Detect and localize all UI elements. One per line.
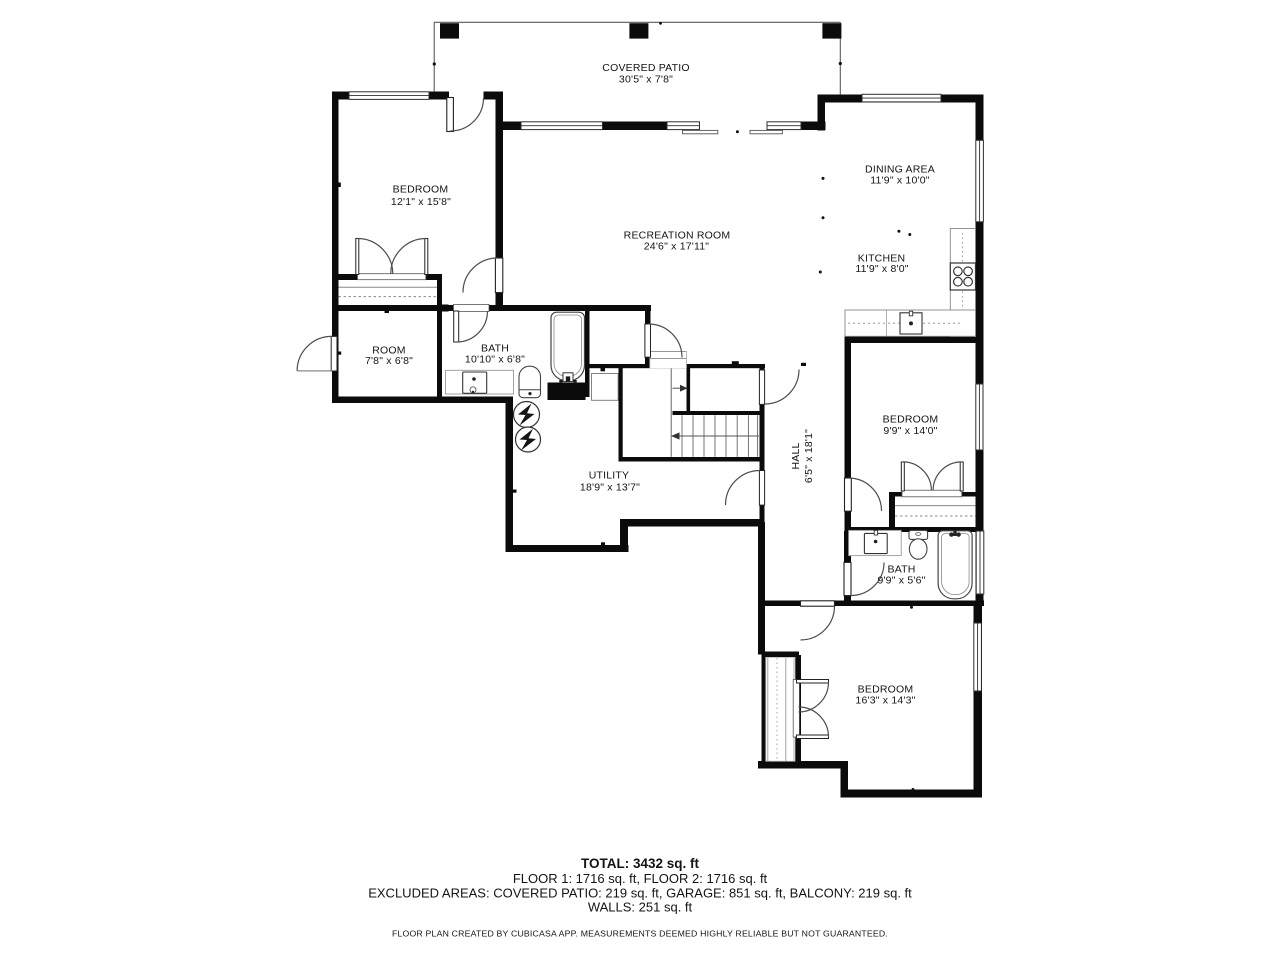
svg-text:FLOOR 1: 1716 sq. ft, FLOOR 2:: FLOOR 1: 1716 sq. ft, FLOOR 2: 1716 sq. … bbox=[513, 871, 768, 886]
svg-text:WALLS: 251 sq. ft: WALLS: 251 sq. ft bbox=[588, 900, 693, 915]
svg-text:BEDROOM: BEDROOM bbox=[393, 184, 449, 196]
svg-text:BATH: BATH bbox=[887, 563, 915, 575]
svg-text:24'6" x 17'11": 24'6" x 17'11" bbox=[644, 240, 710, 252]
svg-text:HALL: HALL bbox=[790, 442, 802, 469]
svg-text:UTILITY: UTILITY bbox=[589, 470, 630, 482]
svg-text:16'3" x 14'3": 16'3" x 14'3" bbox=[855, 695, 915, 707]
svg-text:EXCLUDED AREAS: COVERED PATIO:: EXCLUDED AREAS: COVERED PATIO: 219 sq. f… bbox=[368, 886, 912, 901]
svg-text:9'9" x 5'6": 9'9" x 5'6" bbox=[877, 575, 925, 587]
svg-text:BEDROOM: BEDROOM bbox=[883, 413, 939, 425]
svg-text:12'1" x 15'8": 12'1" x 15'8" bbox=[391, 196, 451, 208]
svg-text:10'10" x 6'8": 10'10" x 6'8" bbox=[465, 353, 525, 365]
svg-text:TOTAL: 3432 sq. ft: TOTAL: 3432 sq. ft bbox=[581, 856, 700, 871]
svg-text:30'5" x 7'8": 30'5" x 7'8" bbox=[619, 74, 673, 86]
svg-text:FLOOR PLAN CREATED BY CUBICASA: FLOOR PLAN CREATED BY CUBICASA APP. MEAS… bbox=[392, 929, 888, 939]
svg-text:11'9" x 10'0": 11'9" x 10'0" bbox=[870, 175, 929, 187]
svg-text:6'5" x 18'1": 6'5" x 18'1" bbox=[803, 429, 815, 483]
svg-text:7'8" x 6'8": 7'8" x 6'8" bbox=[365, 355, 413, 367]
svg-text:11'9" x 8'0": 11'9" x 8'0" bbox=[855, 263, 908, 275]
svg-text:18'9" x 13'7": 18'9" x 13'7" bbox=[580, 481, 640, 493]
svg-text:COVERED PATIO: COVERED PATIO bbox=[602, 62, 689, 74]
svg-text:BEDROOM: BEDROOM bbox=[858, 683, 914, 695]
svg-text:9'9" x 14'0": 9'9" x 14'0" bbox=[883, 425, 937, 437]
